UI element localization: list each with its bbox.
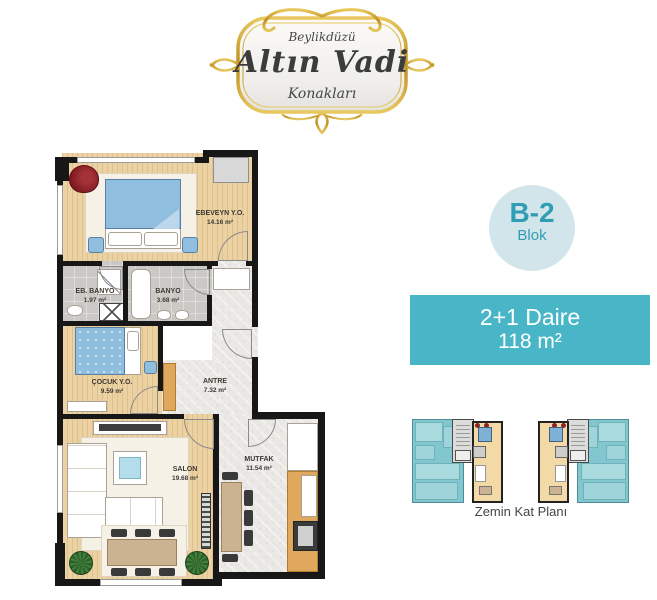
wall (252, 150, 258, 418)
kids-nightstand (144, 361, 157, 374)
mini-room (606, 445, 626, 460)
nightstand-right (182, 237, 198, 253)
room-label-mutfak: MUTFAK 11.54 m² (227, 455, 291, 473)
wall (158, 321, 163, 391)
wall (207, 295, 212, 326)
mini-room (598, 422, 626, 442)
hall-cabinet (163, 363, 176, 411)
dining-table (107, 539, 177, 566)
unit-area: 118 m² (410, 330, 650, 354)
room-area: 14.16 m² (173, 218, 267, 227)
kids-desk (67, 401, 107, 412)
room-name: ÇOCUK Y.O. (80, 378, 144, 387)
brand-logo: Beylikdüzü Altın Vadi Konakları (208, 2, 436, 134)
mini-stairs (571, 422, 585, 446)
mini-stairs (456, 422, 470, 446)
entrance-opening (252, 327, 258, 357)
dining-chair (111, 529, 127, 537)
wall (218, 572, 325, 579)
zemin-kat-thumbnail-right[interactable] (538, 412, 629, 503)
room-name: ANTRE (183, 377, 247, 386)
main-floor-plan: EBEVEYN Y.O. 14.16 m² EB. BANYO 1.97 m² … (55, 145, 327, 597)
dining-chair (159, 568, 175, 576)
bedroom-wardrobe (213, 157, 249, 183)
window (57, 185, 63, 255)
dining-chair (135, 568, 151, 576)
red-armchair (69, 165, 99, 193)
mini-room (415, 422, 443, 442)
kitchen-chair (222, 554, 238, 562)
room-area: 11.54 m² (227, 464, 291, 473)
mini-sofa (555, 465, 566, 482)
mini-room (415, 445, 435, 460)
unit-info-box: 2+1 Daire 118 m² (410, 295, 650, 365)
nightstand-left (88, 237, 104, 253)
room-area: 7.32 m² (183, 386, 247, 395)
mini-dining (549, 486, 562, 495)
dining-chair (159, 529, 175, 537)
mini-bath (555, 446, 568, 458)
room-name: EBEVEYN Y.O. (173, 209, 267, 218)
room-name: MUTFAK (227, 455, 291, 464)
logo-subtitle: Konakları (208, 86, 436, 102)
kitchen-worktop (301, 475, 317, 517)
block-badge: B-2 Blok (489, 185, 575, 271)
window (57, 445, 63, 513)
kids-bed-blanket (75, 327, 125, 375)
mini-sofa (475, 465, 486, 482)
block-badge-code: B-2 (489, 199, 575, 227)
fridge-cabinet (287, 423, 318, 471)
room-label-eb-banyo: EB. BANYO 1.97 m² (65, 287, 125, 305)
mini-room (583, 482, 626, 500)
kitchen-chair (244, 490, 253, 506)
plant-left (69, 551, 93, 575)
wall (252, 412, 325, 419)
room-name: SALON (153, 465, 217, 474)
master-bath-sink (67, 305, 83, 316)
wall (62, 414, 162, 419)
room-label-antre: ANTRE 7.32 m² (183, 377, 247, 395)
tv-screen (99, 424, 161, 431)
block-badge-label: Blok (489, 227, 575, 245)
bath-sink (157, 310, 171, 320)
mini-bed (478, 427, 492, 442)
bed-pillow-right (144, 232, 178, 246)
room-area: 19.68 m² (153, 474, 217, 483)
brochure-page: Beylikdüzü Altın Vadi Konakları (0, 0, 657, 600)
room-name: BANYO (139, 287, 197, 296)
room-name: EB. BANYO (65, 287, 125, 296)
stove-top (298, 526, 313, 546)
wall (62, 321, 212, 326)
mini-dining (479, 486, 492, 495)
kitchen-chair (244, 510, 253, 526)
wall (246, 261, 252, 266)
logo-title: Altın Vadi (208, 45, 436, 80)
dining-chair (111, 568, 127, 576)
floor-plan-caption: Zemin Kat Planı (400, 504, 642, 519)
room-label-ebeveyn: EBEVEYN Y.O. 14.16 m² (173, 209, 267, 227)
room-area: 3.68 m² (139, 296, 197, 305)
toilet (175, 310, 189, 320)
radiator (201, 493, 211, 549)
coffee-table-glass (119, 457, 141, 479)
room-area: 1.97 m² (65, 296, 125, 305)
shower-tray (99, 303, 125, 321)
room-label-banyo: BANYO 3.68 m² (139, 287, 197, 305)
sofa-vertical (67, 443, 107, 538)
unit-type: 2+1 Daire (410, 304, 650, 330)
kitchen-table (221, 482, 242, 552)
room-area: 9.59 m² (80, 387, 144, 396)
window (100, 579, 182, 586)
wall (318, 412, 325, 579)
room-label-cocuk: ÇOCUK Y.O. 9.59 m² (80, 378, 144, 396)
wall (158, 414, 184, 419)
wall (62, 261, 102, 266)
dining-chair (135, 529, 151, 537)
mini-room (415, 482, 458, 500)
kitchen-chair (222, 472, 238, 480)
kids-pillow (127, 331, 139, 351)
mini-room (415, 463, 460, 480)
coat-closet (213, 268, 250, 290)
wall (126, 261, 218, 266)
mini-bath (473, 446, 486, 458)
zemin-kat-thumbnail-left[interactable] (412, 412, 503, 503)
mini-elevator (570, 450, 586, 461)
logo-location: Beylikdüzü (208, 30, 436, 44)
window (77, 157, 195, 163)
wall (203, 150, 258, 157)
mini-bed (549, 427, 563, 442)
kitchen-chair (244, 530, 253, 546)
plant-right (185, 551, 209, 575)
mini-elevator (455, 450, 471, 461)
bed-pillow-left (108, 232, 142, 246)
mini-room (581, 463, 626, 480)
room-label-salon: SALON 19.68 m² (153, 465, 217, 483)
wall (55, 157, 69, 181)
wall (207, 261, 212, 269)
